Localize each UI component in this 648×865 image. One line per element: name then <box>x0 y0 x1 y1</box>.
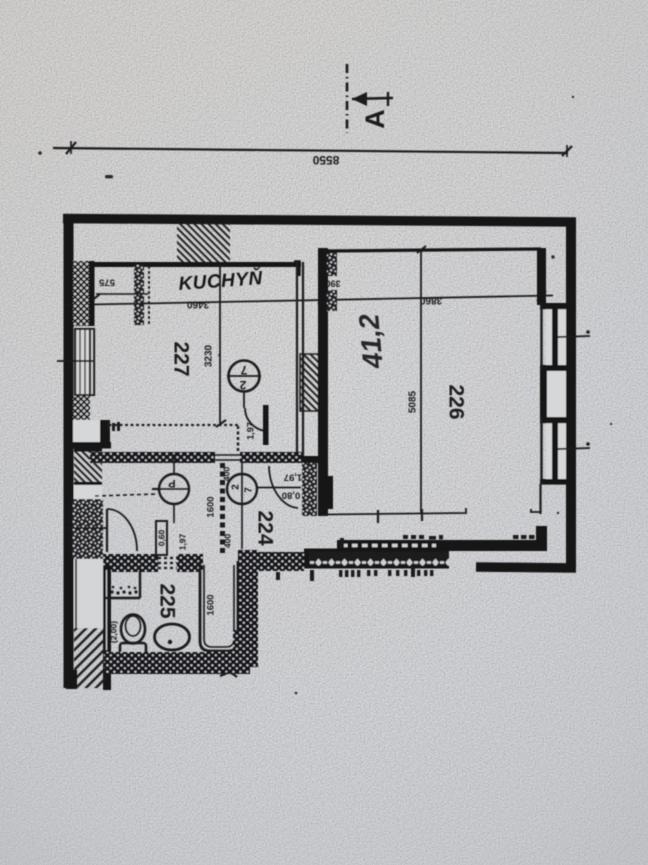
svg-text:575: 575 <box>98 276 115 287</box>
svg-text:0,80: 0,80 <box>282 489 301 500</box>
svg-text:224: 224 <box>253 510 276 545</box>
svg-text:400: 400 <box>221 467 231 481</box>
svg-text:5085: 5085 <box>408 390 419 413</box>
svg-text:0,60: 0,60 <box>156 529 166 546</box>
svg-text:1,97: 1,97 <box>177 533 187 550</box>
svg-text:1,97: 1,97 <box>284 471 303 482</box>
svg-text:41,2: 41,2 <box>353 312 389 370</box>
svg-text:A: A <box>360 109 390 129</box>
svg-text:226: 226 <box>444 384 467 419</box>
svg-text:P: P <box>168 477 175 489</box>
svg-text:(2,00): (2,00) <box>108 621 118 643</box>
svg-text:1600: 1600 <box>206 594 217 615</box>
svg-text:2: 2 <box>231 484 242 490</box>
svg-text:1,97: 1,97 <box>245 422 255 440</box>
svg-text:2: 2 <box>239 378 246 392</box>
svg-text:3460: 3460 <box>186 298 209 309</box>
svg-text:7: 7 <box>240 363 247 377</box>
svg-text:3860: 3860 <box>419 294 442 305</box>
svg-text:8550: 8550 <box>312 153 339 167</box>
svg-text:3230: 3230 <box>204 344 215 367</box>
svg-text:225: 225 <box>155 583 178 618</box>
svg-text:1600: 1600 <box>206 496 217 517</box>
svg-text:227: 227 <box>169 341 192 376</box>
svg-text:7: 7 <box>244 487 255 493</box>
svg-text:400: 400 <box>222 534 232 548</box>
